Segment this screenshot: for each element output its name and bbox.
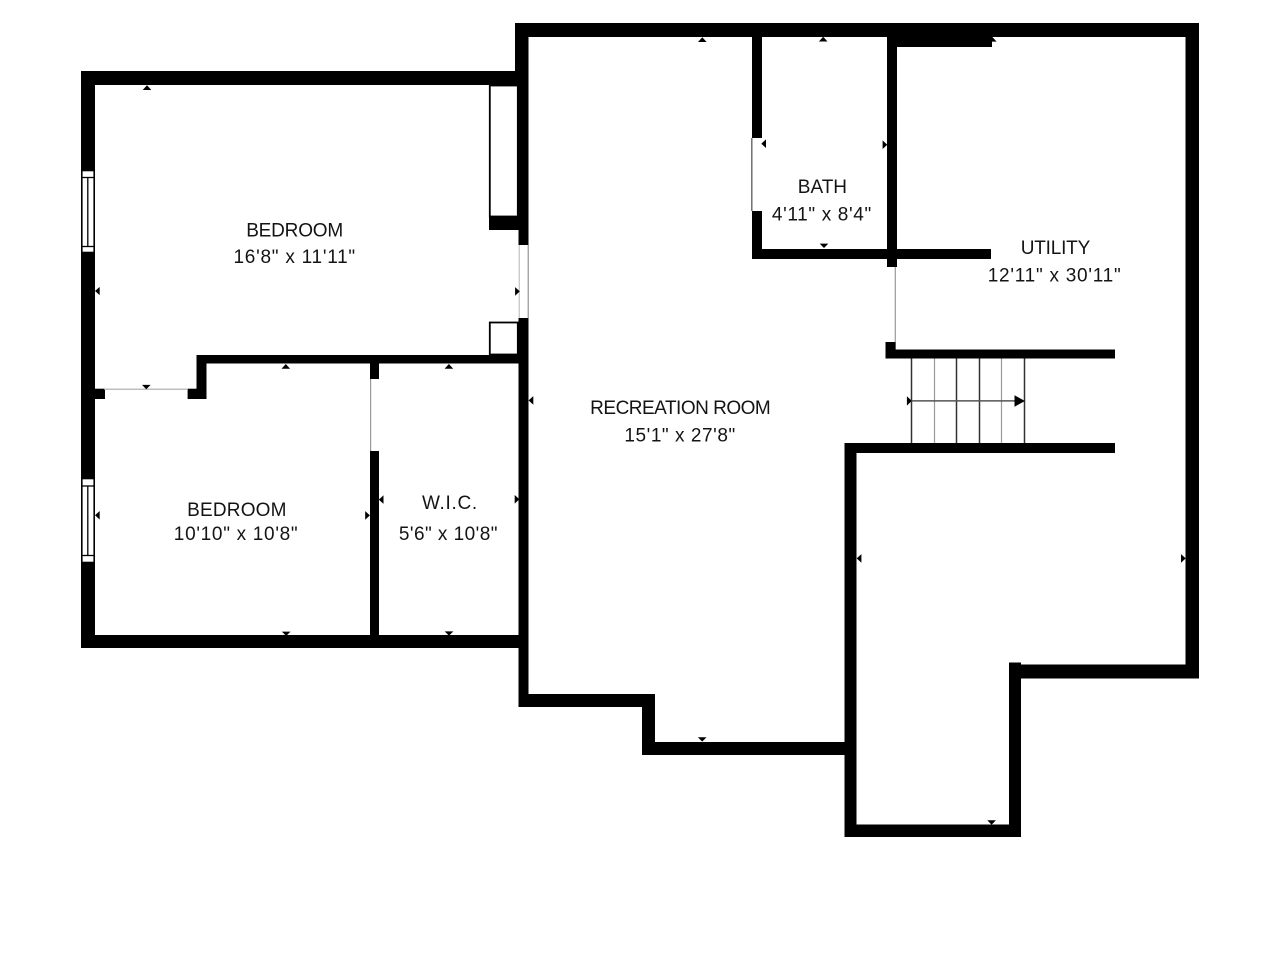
svg-text:UTILITY: UTILITY — [1021, 238, 1091, 259]
svg-text:BATH: BATH — [798, 177, 847, 198]
svg-text:16'8" x 11'11": 16'8" x 11'11" — [233, 247, 355, 268]
svg-text:BEDROOM: BEDROOM — [187, 500, 287, 521]
svg-text:5'6" x 10'8": 5'6" x 10'8" — [399, 524, 498, 545]
svg-text:10'10" x 10'8": 10'10" x 10'8" — [174, 524, 299, 545]
svg-text:15'1" x 27'8": 15'1" x 27'8" — [624, 426, 735, 447]
svg-text:12'11" x 30'11": 12'11" x 30'11" — [988, 266, 1122, 287]
svg-text:BEDROOM: BEDROOM — [246, 221, 343, 242]
svg-text:4'11" x 8'4": 4'11" x 8'4" — [772, 204, 872, 225]
svg-text:RECREATION ROOM: RECREATION ROOM — [590, 398, 770, 419]
svg-text:W.I.C.: W.I.C. — [422, 493, 478, 514]
